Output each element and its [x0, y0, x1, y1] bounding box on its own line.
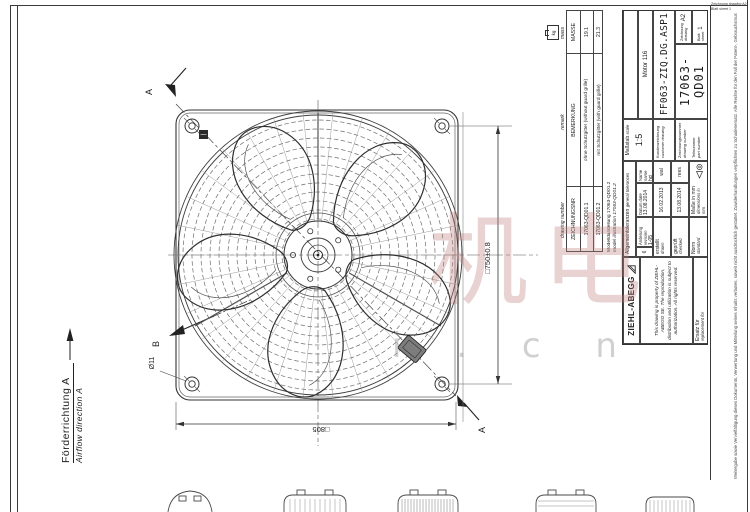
view-b-leader — [214, 300, 250, 316]
drawing-sheet: A A B — [0, 0, 750, 512]
format-de: Zeichnung — [680, 23, 684, 41]
bottom-partial-views — [168, 490, 694, 512]
general-tolerances-cell: Allgemeintoleranzen general tolerances — [623, 161, 636, 257]
drawn-date: 16.02.2013 — [653, 183, 671, 217]
standard-units-row: Norm standard Maße in mm dimensions in m… — [689, 161, 708, 257]
projection-symbol-icon — [695, 164, 704, 179]
motor-type: Motor 116 — [643, 51, 649, 78]
variant-table: ZEICHNUNGSNR BEMERKUNG MASSE 17063-QD01.… — [566, 10, 603, 252]
section-label-a-top: A — [144, 89, 154, 95]
col-mass-en: kg mass — [547, 10, 566, 56]
checked-date: 13.08.2014 — [671, 183, 689, 217]
variant-2-mass: 21.3 — [594, 11, 604, 53]
model-illustration-note: Modelldarstellung 17063-QD01.2 model ill… — [607, 112, 619, 252]
dim-plate-size-label: □805 — [312, 425, 329, 434]
replacement-for-cell: Ersatz für replacement for — [693, 257, 708, 344]
units-note-en: dimensions in mm — [697, 182, 707, 214]
company-name: ZIEHL-ABEGG — [627, 276, 636, 336]
col-remark-de: BEMERKUNG — [567, 53, 580, 186]
scale-value: 1:5 — [634, 122, 644, 158]
revision-name-cell: Name name hci — [636, 161, 653, 183]
airflow-arrow — [67, 328, 74, 360]
sheet-value: 1 — [698, 26, 704, 29]
section-arrow-a-top — [165, 68, 186, 97]
format-cell: Zeichnung drawing A2 — [675, 10, 692, 44]
tolerances-de: Allgemeintoleranzen — [625, 209, 631, 254]
variant-table-en-headers: drawing number remark kg mass — [538, 10, 566, 252]
empty-cell — [623, 10, 638, 119]
variant-1-number: 17063-QD01.1 — [581, 186, 593, 251]
legal-note: Weitergabe sowie Vervielfältigung dieses… — [733, 13, 746, 479]
variant-row-2: 17063-QD01.2 mit Schutzgitter (with guar… — [594, 11, 604, 251]
drawn-row: erstellt drawn 16.02.2013 wal — [653, 161, 671, 257]
section-label-a-bottom: A — [477, 427, 487, 433]
checked-row: geprüft checked 13.08.2014 rees — [671, 161, 689, 257]
variant-1-mass: 19.1 — [581, 11, 593, 53]
title-block: ZIEHL-ABEGG This drawing is property of … — [622, 10, 708, 345]
variant-row-1: 17063-QD01.1 ohne Schutzgitter (without … — [581, 11, 594, 251]
company-logo: ZIEHL-ABEGG — [623, 257, 640, 344]
motor-cell: Motor 116 — [638, 10, 653, 119]
dim-hole-pitch-label: □750±0.8 — [483, 242, 492, 274]
format-value: A2 — [681, 14, 687, 21]
scale-cell: Maßstab scale 1:5 — [623, 119, 653, 161]
dim-hole-dia-leader — [160, 371, 186, 381]
customer-drawing-label-cell: Kundenzeichnung customer drawing — [653, 119, 675, 161]
drawing-number-label-cell: Zeichnungsnummer drawing number Teilnumm… — [675, 119, 708, 161]
nameplate — [199, 130, 208, 139]
revision-index: 6 — [636, 247, 653, 257]
standard-en: standard — [697, 220, 702, 254]
corner-format-stamp: Zeichnung drawing A2 Blatt sheet 1 — [711, 2, 749, 15]
checked-name: rees — [671, 161, 689, 183]
revision-change-cell: Änderung revision 1-05 — [636, 217, 653, 247]
customer-drawing-en: customer drawing — [660, 122, 665, 158]
sheet-cell: Blatt sheet 1 — [692, 10, 708, 44]
part-number-en: part number — [696, 122, 701, 158]
col-drawing-number-de: ZEICHNUNGSNR — [567, 186, 580, 251]
revision-date: 13.08.2014 — [643, 185, 649, 215]
drawing-number-value: 17063-QD01 — [675, 44, 708, 119]
logo-triangle-icon — [627, 265, 636, 274]
tolerances-en: general tolerances — [625, 173, 630, 207]
sheet-de: Blatt — [697, 32, 701, 41]
revision-date-cell: Datum date 13.08.2014 — [636, 183, 653, 217]
variant-1-remark: ohne Schutzgitter (without guard grille) — [581, 53, 593, 186]
property-note: This drawing is property of ZIEHL-ABEGG … — [640, 257, 693, 344]
view-label-b: B — [151, 341, 161, 347]
col-mass-de: MASSE — [567, 11, 580, 53]
format-en: drawing — [684, 23, 688, 41]
section-arrow-a-bottom — [457, 395, 479, 420]
drawing-number-en: drawing number — [682, 122, 687, 158]
dimension-hole-pitch — [450, 112, 512, 422]
revision-row: 6 Änderung revision 1-05 Datum date 13.0… — [636, 161, 653, 257]
drawn-name: wal — [653, 161, 671, 183]
replacement-en: replacement for — [701, 260, 706, 341]
sheet-en: sheet — [701, 32, 705, 41]
variant-2-remark: mit Schutzgitter (with guard grille) — [594, 53, 604, 186]
checked-en: checked — [679, 220, 684, 254]
model-note-en: model illustration 17063-QD01.2 — [613, 112, 619, 252]
title-block-strip: drawing number remark kg mass ZEICHNUNGS… — [538, 10, 710, 480]
dim-hole-dia-label: Ø11 — [149, 357, 156, 370]
drawn-en: drawn — [661, 220, 666, 254]
kg-weight-icon: kg — [547, 26, 559, 41]
variant-2-number: 17063-QD01.2 — [594, 186, 604, 251]
customer-drawing-value: FF063-ZIQ.DG.ASP1 — [653, 10, 675, 119]
